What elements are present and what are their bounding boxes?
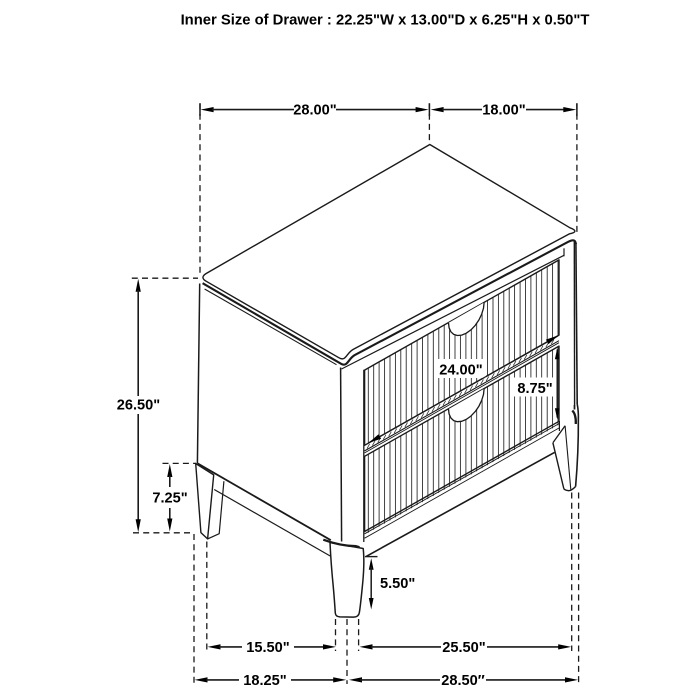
svg-text:7.25": 7.25"	[152, 491, 187, 507]
svg-text:Inner Size of Drawer : 22.25"W: Inner Size of Drawer : 22.25"W x 13.00"D…	[181, 13, 590, 29]
svg-text:25.50": 25.50"	[442, 640, 485, 656]
svg-text:8.75": 8.75"	[517, 381, 552, 397]
svg-text:24.00": 24.00"	[439, 363, 482, 379]
svg-text:18.00": 18.00"	[482, 103, 525, 119]
svg-text:5.50": 5.50"	[380, 576, 415, 592]
svg-text:26.50": 26.50"	[117, 398, 160, 414]
svg-text:15.50": 15.50"	[246, 640, 289, 656]
svg-text:28.50″: 28.50″	[441, 673, 485, 689]
svg-text:18.25": 18.25"	[243, 673, 286, 689]
svg-text:28.00": 28.00"	[293, 103, 336, 119]
